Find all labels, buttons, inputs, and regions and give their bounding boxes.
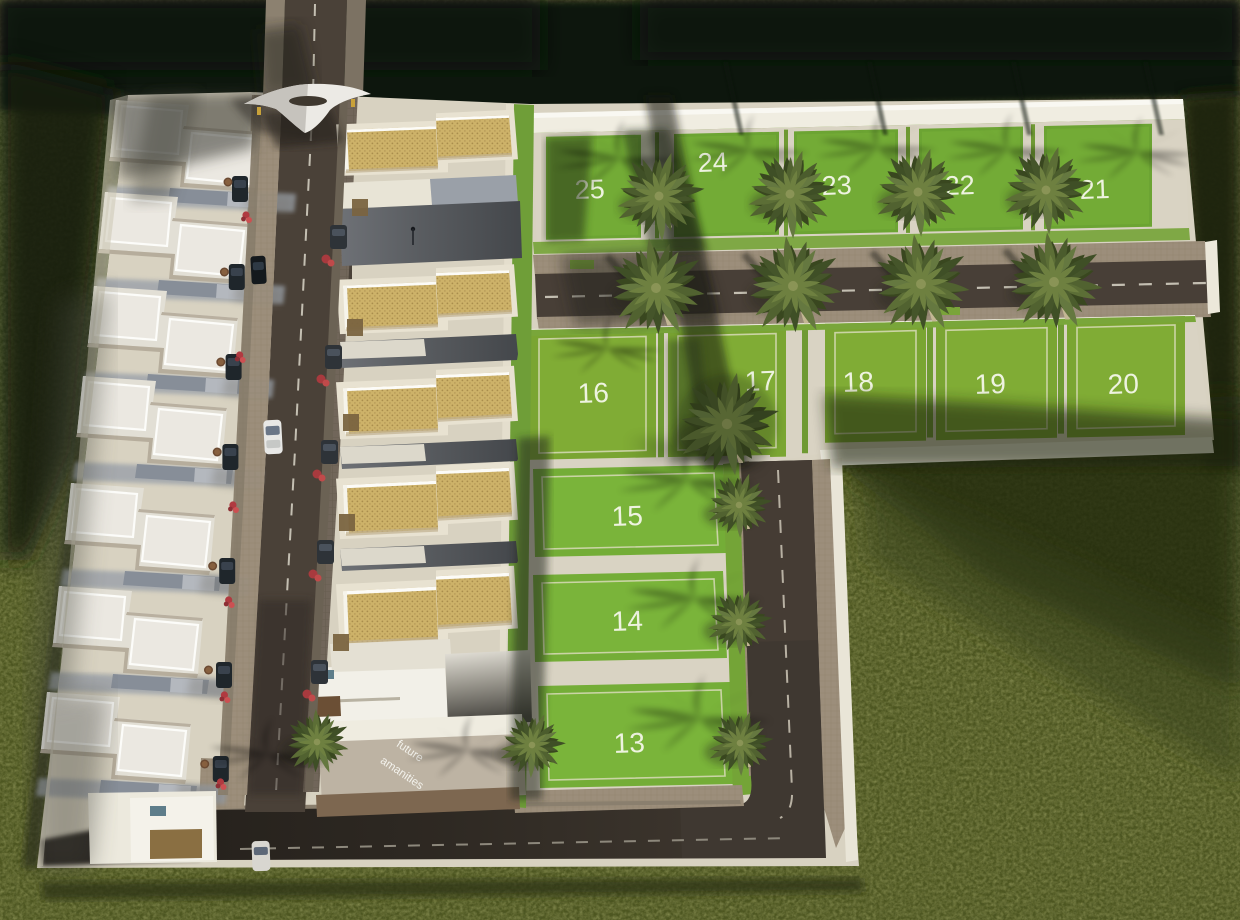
svg-text:14: 14 <box>611 605 643 637</box>
svg-text:15: 15 <box>611 500 643 532</box>
svg-text:16: 16 <box>577 377 609 409</box>
svg-text:19: 19 <box>974 368 1006 400</box>
svg-text:18: 18 <box>842 366 874 398</box>
svg-text:13: 13 <box>613 727 645 759</box>
svg-text:21: 21 <box>1079 174 1110 205</box>
svg-text:20: 20 <box>1107 368 1139 400</box>
